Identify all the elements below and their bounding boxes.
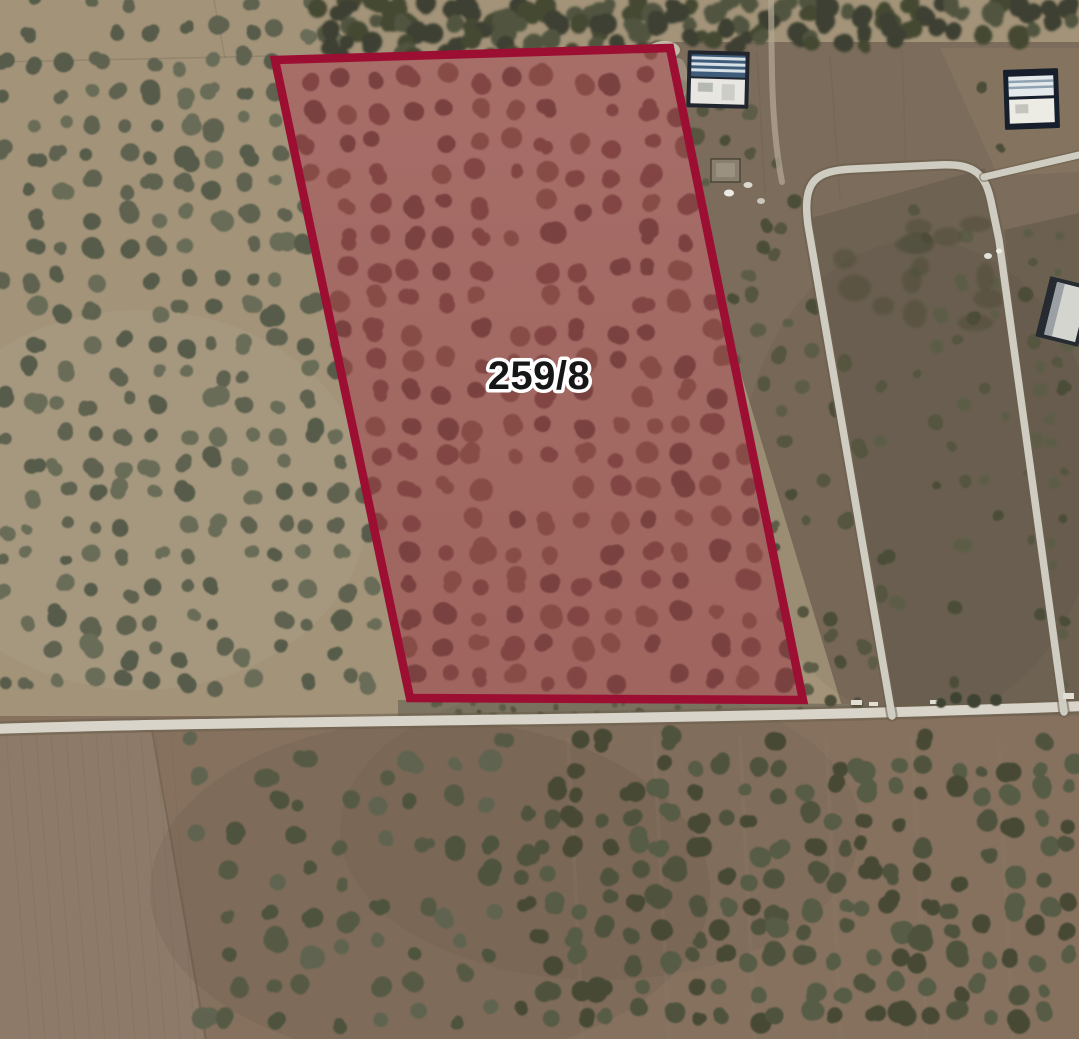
roadside-object xyxy=(851,700,862,705)
building xyxy=(686,50,749,109)
aerial-imagery: 259/8 xyxy=(0,0,1079,1039)
vehicle xyxy=(757,198,765,204)
roadside-object xyxy=(1063,693,1074,699)
building xyxy=(1003,68,1060,130)
vehicle xyxy=(724,190,734,197)
roadside-object xyxy=(869,702,878,706)
vehicle xyxy=(996,249,1002,254)
satellite-map-canvas[interactable]: 259/8 xyxy=(0,0,1079,1039)
shed xyxy=(711,159,740,182)
vehicle xyxy=(984,253,992,259)
parcel-label: 259/8 xyxy=(488,354,591,398)
vehicle xyxy=(744,182,753,188)
